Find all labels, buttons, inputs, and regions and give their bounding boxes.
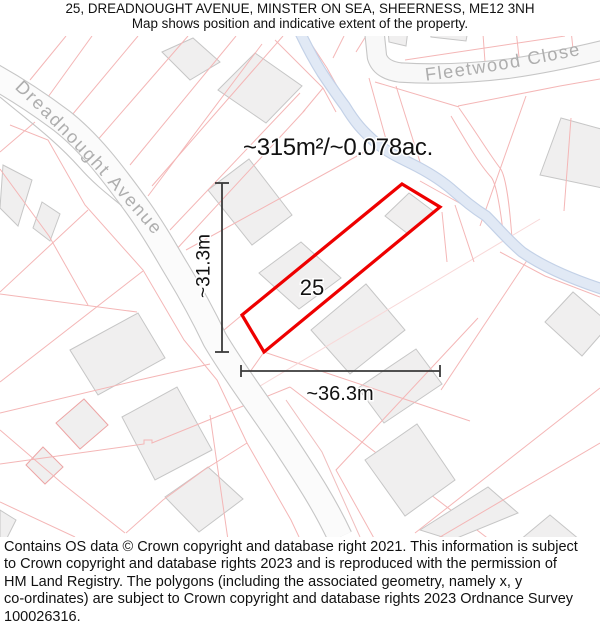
svg-text:~36.3m: ~36.3m [306,383,373,405]
svg-text:25: 25 [300,275,324,300]
svg-text:~31.3m: ~31.3m [194,234,215,298]
svg-text:~315m²/~0.078ac.: ~315m²/~0.078ac. [243,134,433,161]
